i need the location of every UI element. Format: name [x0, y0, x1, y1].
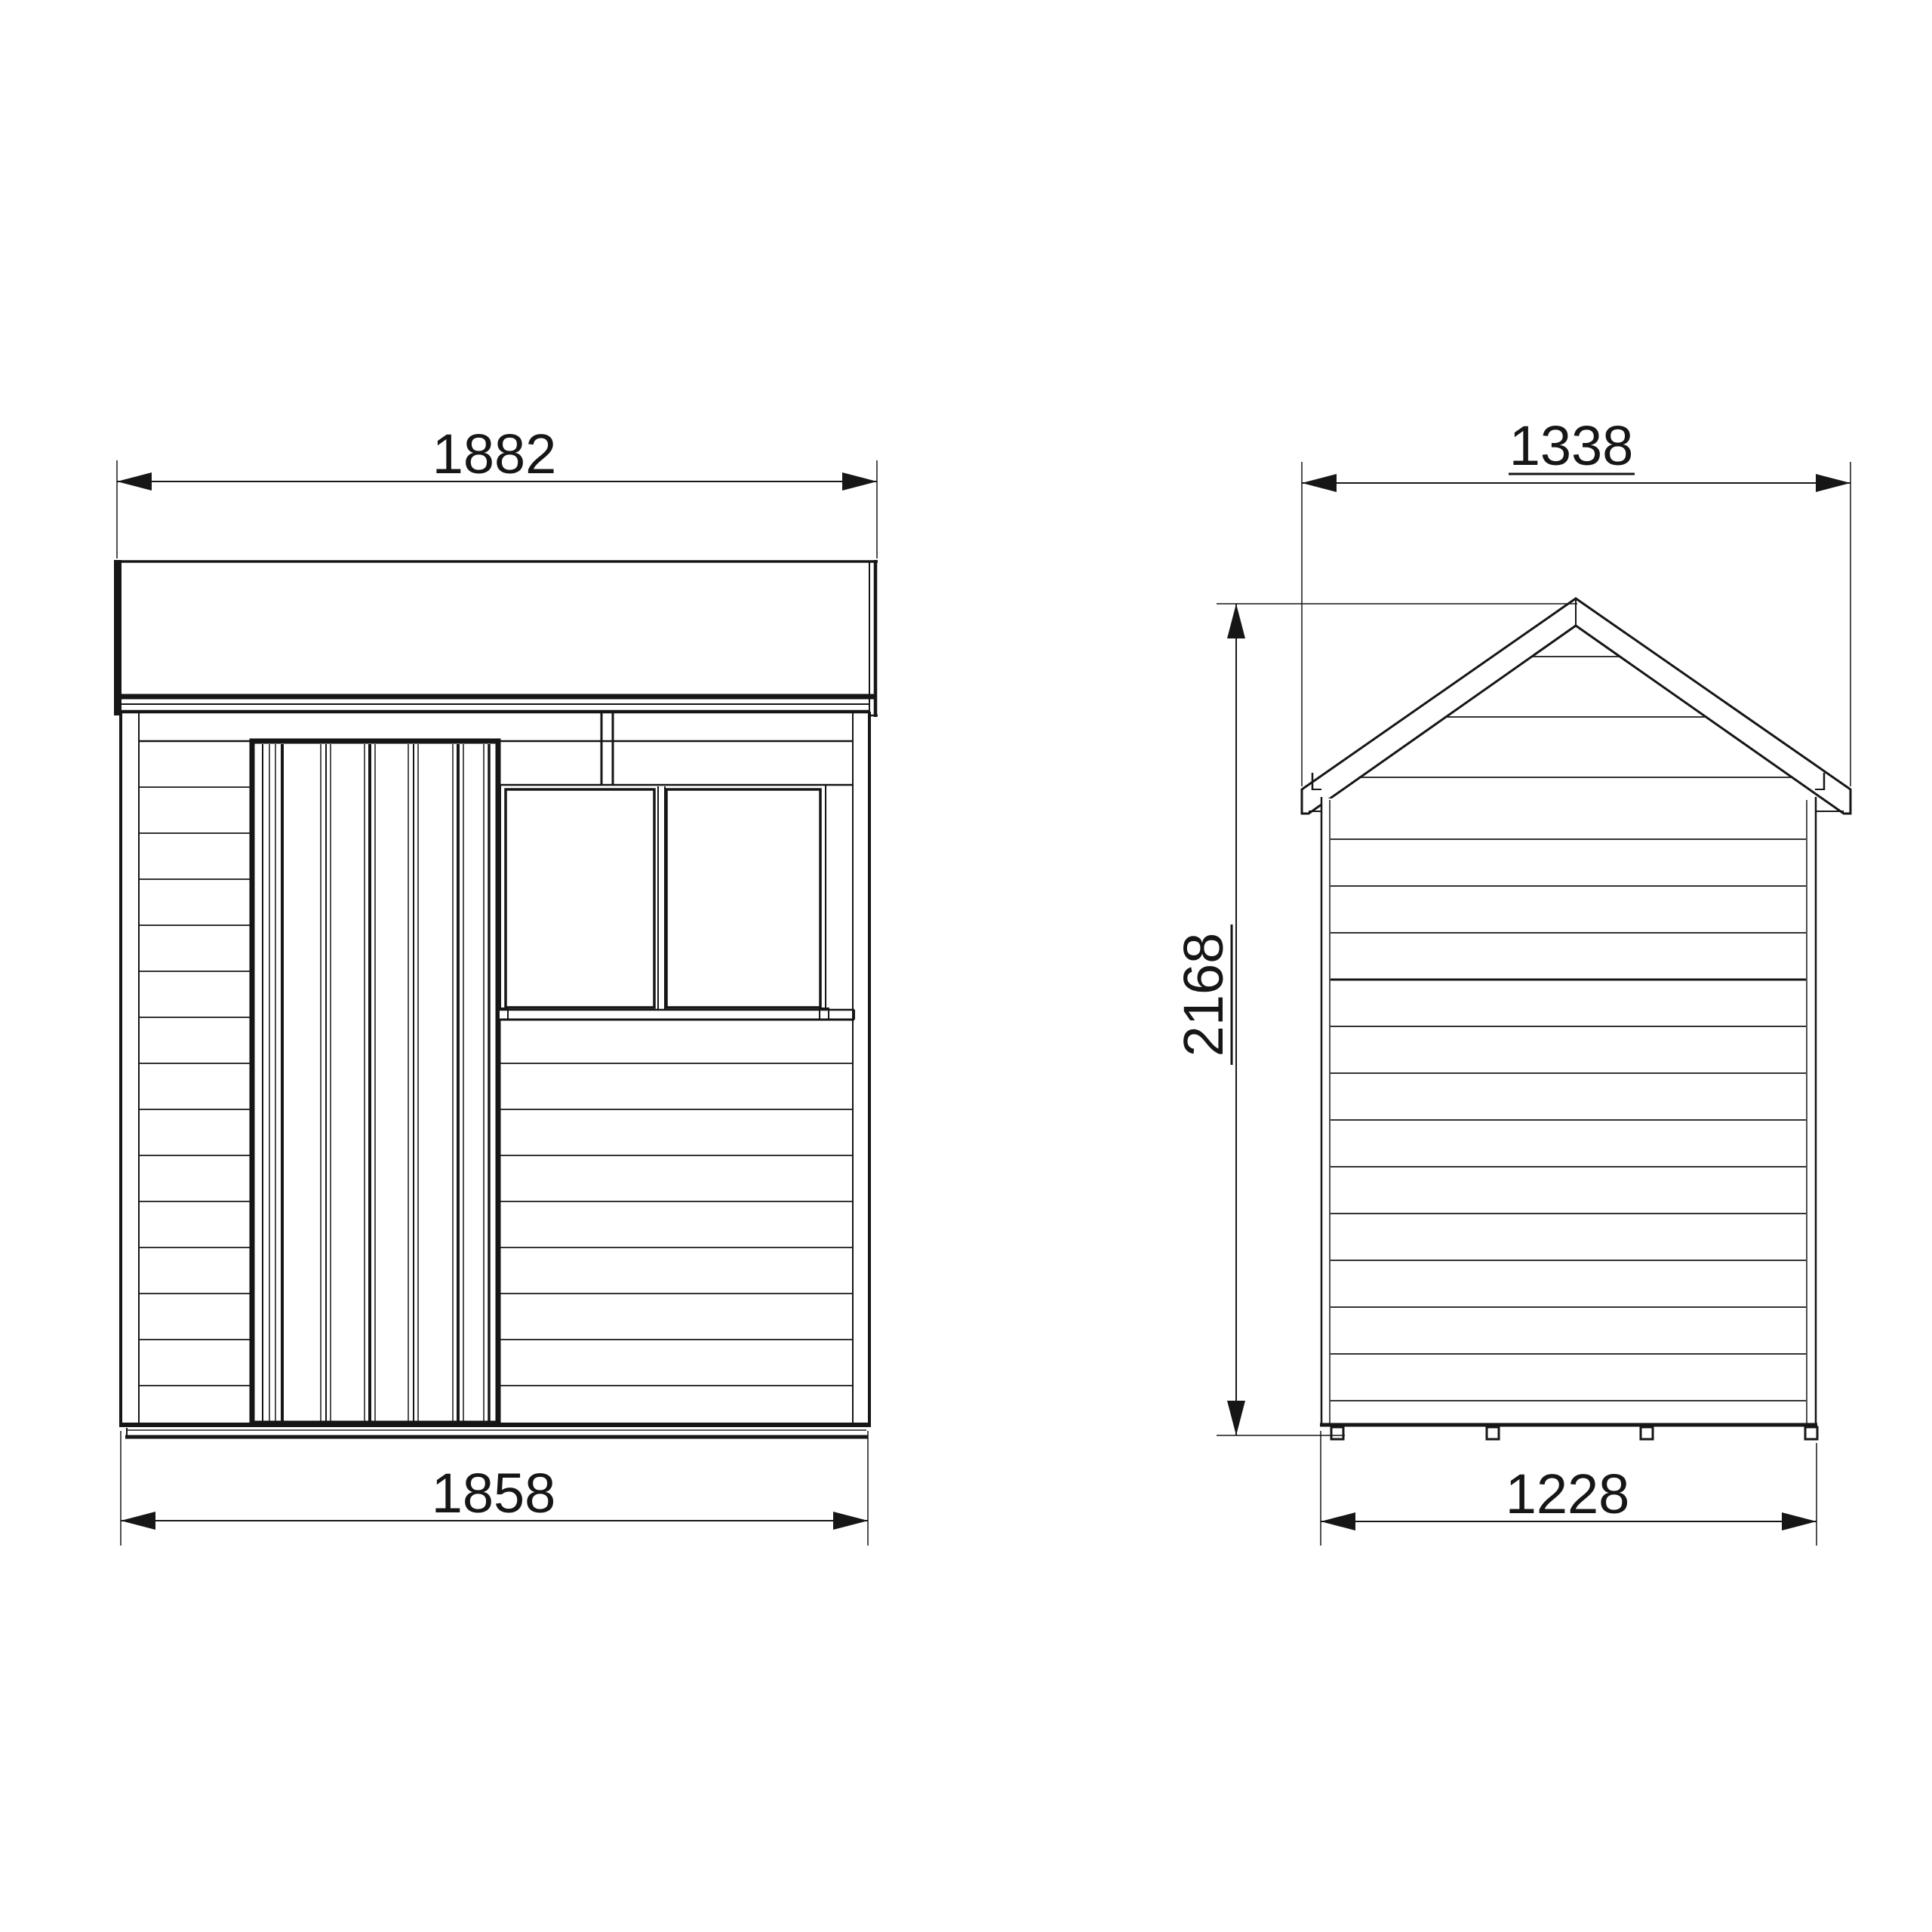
drawing-canvas: 1882 1858 1338 1228	[0, 0, 1932, 1932]
arrow-left-icon	[117, 472, 152, 491]
dimension-label: 1338	[1509, 414, 1634, 477]
arrow-left-icon	[1302, 474, 1337, 492]
side-wall	[1320, 797, 1817, 1439]
arrow-right-icon	[1782, 1512, 1817, 1531]
bearer-foot	[1487, 1427, 1499, 1439]
dimension-front-roof-width: 1882	[117, 423, 877, 558]
arrow-right-icon	[842, 472, 877, 491]
front-roof-fascia	[114, 560, 878, 717]
dimension-side-base-width: 1228	[1321, 1431, 1817, 1546]
dimension-label: 2168	[1172, 933, 1235, 1057]
arrow-right-icon	[833, 1512, 868, 1530]
roof-left-end-cap	[114, 560, 122, 715]
arrow-down-icon	[1227, 1401, 1245, 1435]
dimension-front-base-width: 1858	[121, 1431, 868, 1546]
front-base-bearer	[125, 1428, 868, 1438]
side-wall-panel	[1322, 798, 1815, 1423]
dimension-label: 1228	[1506, 1463, 1630, 1525]
front-door	[252, 741, 498, 1423]
arrow-left-icon	[1321, 1512, 1355, 1531]
dimension-label: 1882	[432, 423, 557, 485]
arrow-right-icon	[1816, 474, 1850, 492]
bearer-foot	[1641, 1427, 1653, 1439]
apex-roof-band	[1302, 598, 1850, 814]
side-elevation	[1302, 598, 1850, 1439]
floor-bearer-feet	[1331, 1427, 1817, 1439]
arrow-up-icon	[1227, 604, 1245, 638]
front-windows	[497, 785, 854, 1020]
drawing-page: 1882 1858 1338 1228	[0, 0, 1932, 1932]
bearer-foot	[1805, 1427, 1817, 1439]
dimension-label: 1858	[432, 1462, 556, 1524]
bearer-foot	[1331, 1427, 1343, 1439]
window-pane-left	[506, 789, 654, 1008]
window-pane-right	[666, 789, 820, 1008]
side-roof	[1302, 598, 1850, 814]
front-elevation	[114, 560, 878, 1438]
roof-fascia-panel	[115, 560, 878, 699]
arrow-left-icon	[121, 1512, 155, 1530]
